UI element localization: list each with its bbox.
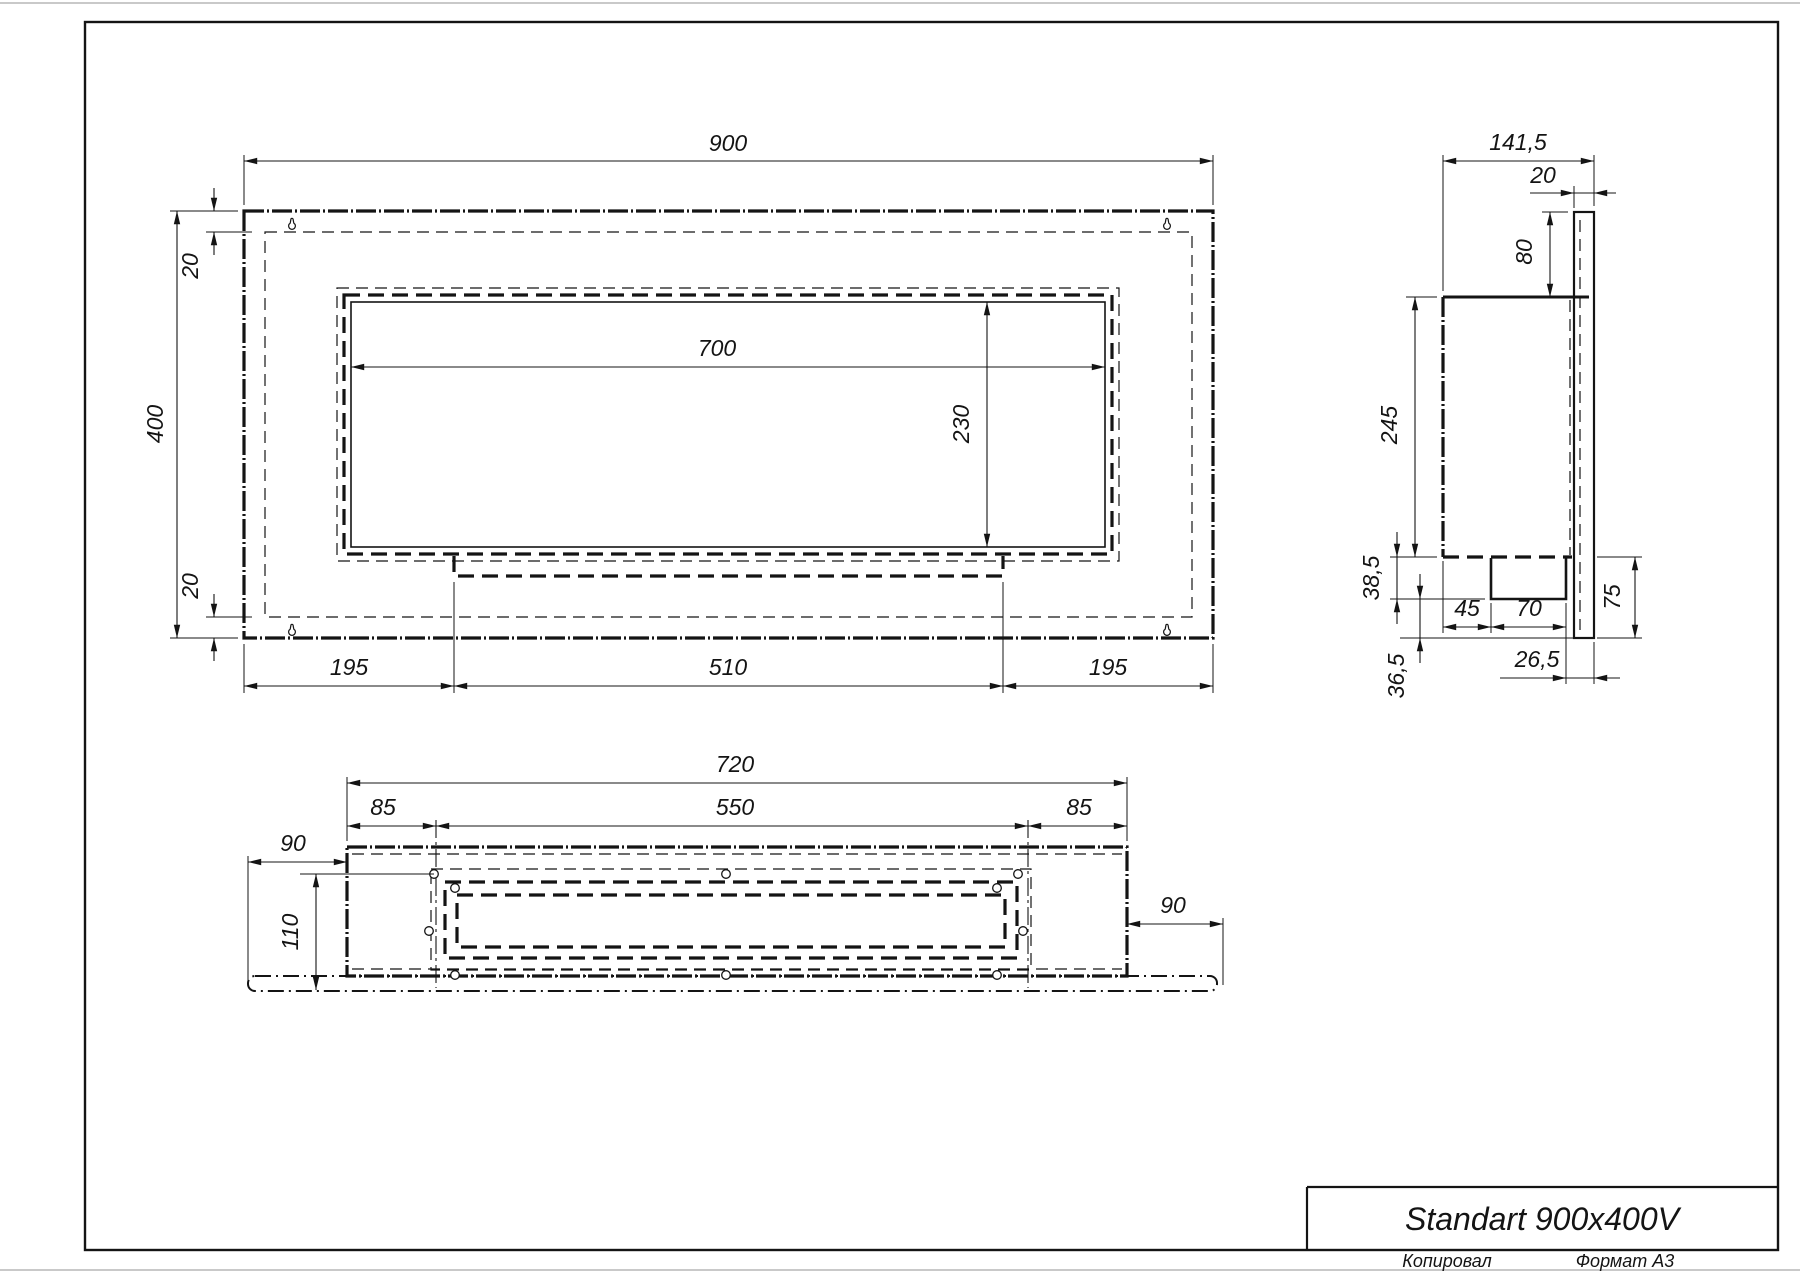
drawing-title: Standart 900x400V [1405,1201,1682,1237]
drawing-frame [85,22,1778,1250]
dim-bottom-plate-left: 90 [280,830,306,856]
dim-side-tray-depth: 38,5 [1358,555,1384,600]
dim-side-tray-offset: 45 [1454,595,1480,621]
dim-side-depth: 141,5 [1489,129,1547,155]
dim-bottom-plate-right: 90 [1160,892,1186,918]
dim-side-body-height: 245 [1376,406,1402,446]
bottom-opening-hidden-inner [457,895,1005,947]
dim-bottom-depth: 110 [277,913,303,950]
dim-side-plate-drop: 75 [1599,584,1625,610]
dim-opening-width: 700 [698,335,737,361]
front-flange-hidden [265,232,1192,617]
side-wall-plate [1574,212,1594,638]
keyhole-slot-icon [1164,218,1171,229]
bottom-fastener-holes [425,870,1028,980]
bottom-opening-hidden-outer [431,869,1031,970]
dim-opening-height: 230 [948,405,974,445]
dim-side-below-tray: 36,5 [1383,653,1409,698]
front-witness-lines [170,155,1213,693]
dim-side-tray-width: 70 [1516,595,1542,621]
title-block: Standart 900x400V [1307,1187,1778,1250]
front-outer-contour [244,211,1213,638]
keyhole-slot-icon [289,624,296,635]
drawing-canvas: 900 400 20 20 700 230 195 510 195 [0,0,1800,1273]
dim-side-tray-to-plate: 26,5 [1514,646,1560,672]
dim-side-back-gap: 20 [1529,162,1556,188]
dim-bottom-opening-width: 550 [716,794,755,820]
dim-bottom-width: 720 [716,751,755,777]
dim-side-above-body: 80 [1511,239,1537,265]
dim-bottom-left: 195 [330,654,369,680]
dim-bottom-right: 195 [1089,654,1128,680]
side-tray [1491,558,1566,599]
side-view: 141,5 20 80 245 38,5 36,5 45 70 26,5 75 [1358,129,1642,698]
keyhole-slot-icon [1164,624,1171,635]
bottom-view: 720 85 550 85 90 110 90 [248,751,1223,991]
dim-bottom-center: 510 [709,654,748,680]
bottom-back-panel-strip [248,976,1217,991]
footer-format-label: Формат А3 [1576,1251,1675,1271]
dim-front-top-flange: 20 [177,253,203,280]
dim-bottom-right-margin: 85 [1066,794,1092,820]
keyhole-slot-icon [289,218,296,229]
front-opening-hidden-outer [337,288,1119,561]
dim-front-bottom-flange: 20 [177,573,203,600]
front-burner-hidden [454,556,1003,576]
front-opening-hidden-thick [344,295,1112,554]
footer-copied-label: Копировал [1402,1251,1492,1271]
dim-front-height: 400 [142,405,168,444]
dim-bottom-left-margin: 85 [370,794,396,820]
dim-front-width: 900 [709,130,748,156]
front-view: 900 400 20 20 700 230 195 510 195 [142,130,1213,693]
drawing-sheet: 900 400 20 20 700 230 195 510 195 [0,0,1800,1273]
